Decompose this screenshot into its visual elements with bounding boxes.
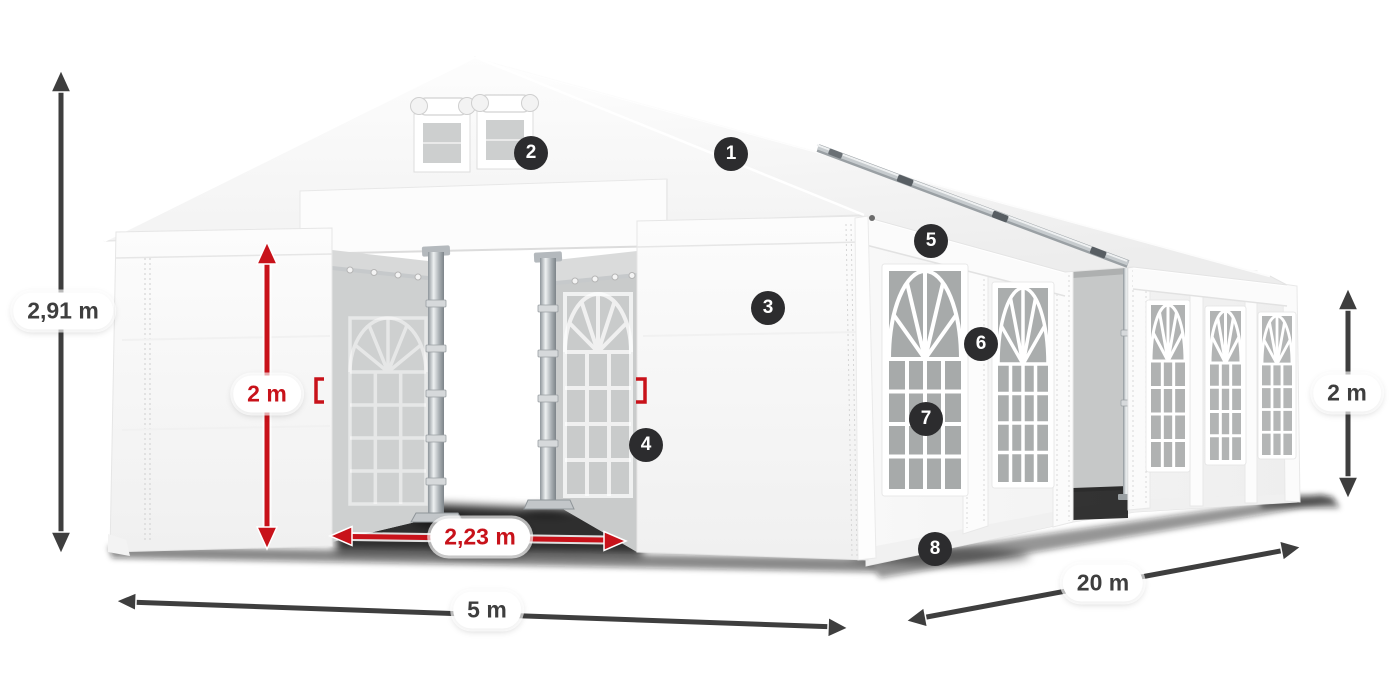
- callout-badge-1[interactable]: 1: [714, 137, 748, 171]
- dimension-label-tent-length: 20 m: [1063, 565, 1143, 602]
- dimension-label-total-height: 2,91 m: [13, 293, 113, 330]
- callout-badge-7[interactable]: 7: [909, 402, 943, 436]
- tent-illustration: [0, 0, 1400, 700]
- callout-badge-6[interactable]: 6: [964, 327, 998, 361]
- callout-badge-3[interactable]: 3: [751, 291, 785, 325]
- tent-diagram-stage: 2,91 m 2 m 2,23 m 5 m 20 m 2 m 1 2 3 4 5…: [0, 0, 1400, 700]
- corner-grommet: [869, 215, 875, 221]
- callout-badge-2[interactable]: 2: [514, 136, 548, 170]
- dimension-label-side-wall-height: 2 m: [1313, 375, 1381, 412]
- front-panel-right: [636, 216, 868, 560]
- callout-badge-8[interactable]: 8: [918, 532, 952, 566]
- dimension-label-front-wall-height: 2 m: [233, 376, 301, 413]
- callout-badge-5[interactable]: 5: [914, 224, 948, 258]
- dimension-label-entrance-width: 2,23 m: [430, 519, 530, 556]
- callout-badge-4[interactable]: 4: [629, 428, 663, 462]
- dimension-label-tent-width: 5 m: [453, 592, 521, 629]
- entrance-header-beam: [300, 179, 667, 254]
